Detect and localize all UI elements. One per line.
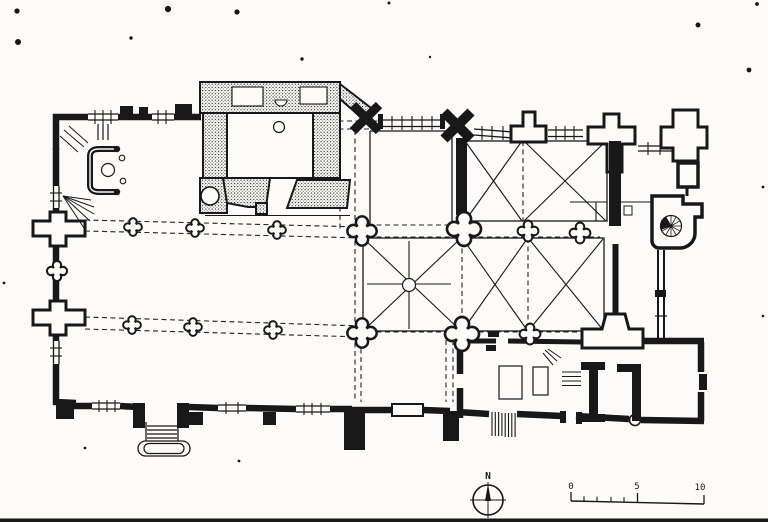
south-buttress-2: [443, 411, 459, 441]
choir-east-wall: [609, 141, 621, 226]
scanned-sheet: N 0 5 10: [0, 0, 768, 522]
north-label: N: [485, 471, 491, 482]
chapel-arched-door: [201, 187, 219, 205]
scale-label-0: 0: [568, 482, 573, 492]
vault-boss-circle: [403, 279, 416, 292]
south-buttress-large: [344, 410, 365, 450]
chapel-font-circle: [274, 122, 285, 133]
spiral-stair-icon: [660, 216, 681, 237]
floor-plan: N 0 5 10: [0, 0, 768, 522]
scale-label-5: 5: [634, 482, 639, 492]
paper-background: [0, 0, 768, 522]
scan-edge-bar: [0, 519, 768, 522]
stair-turret-room: [652, 196, 702, 248]
ne-small-chapel: [678, 163, 698, 187]
scale-label-10: 10: [695, 483, 706, 493]
south-wall-panel: [392, 404, 423, 416]
